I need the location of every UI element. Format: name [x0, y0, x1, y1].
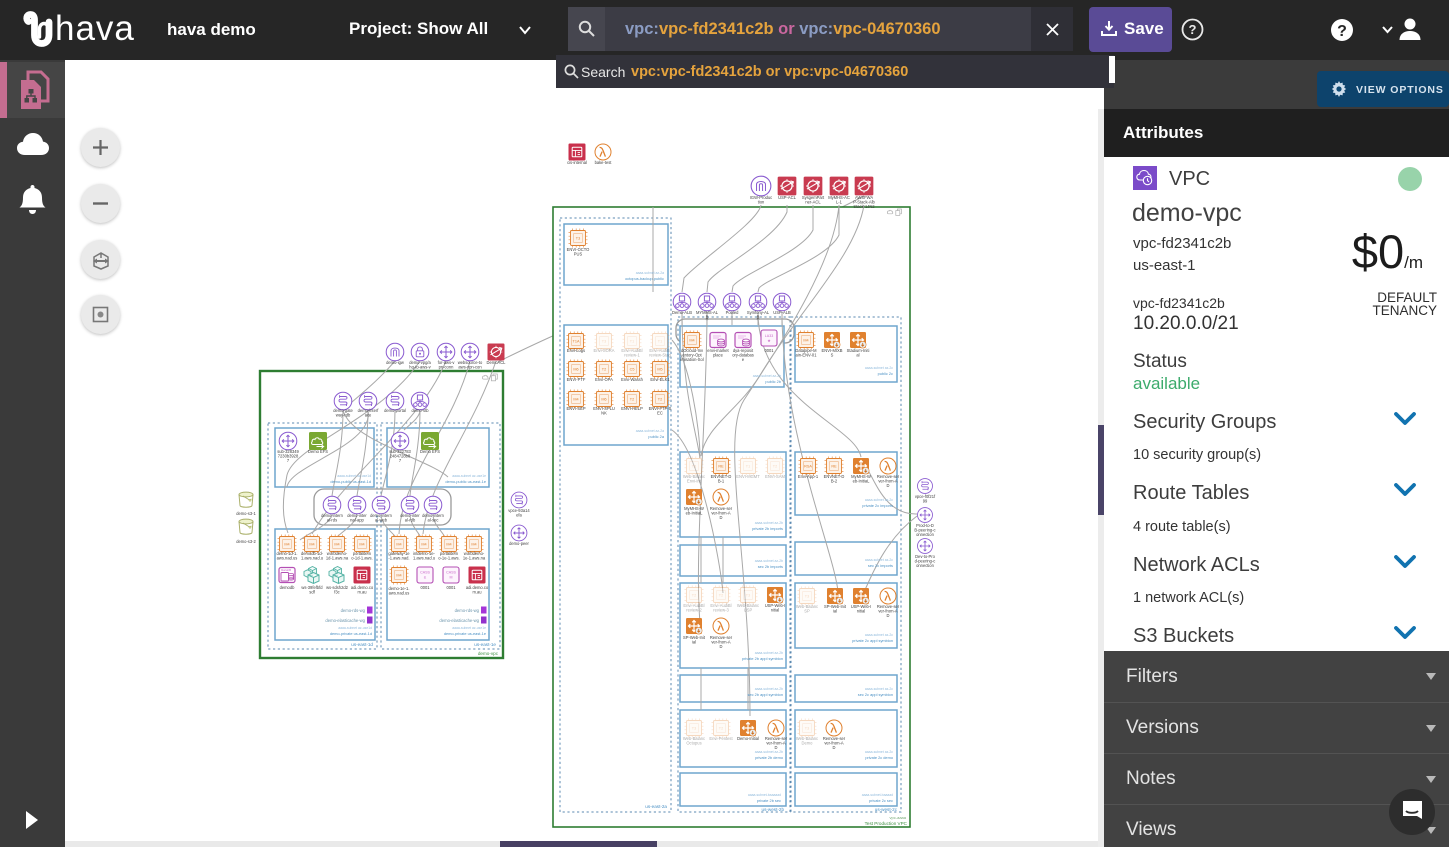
svg-text:aaaa-subnet az-use1d: aaaa-subnet az-use1d: [337, 474, 371, 478]
svg-text:us-west-2c: us-west-2c: [875, 807, 898, 812]
svg-text:public 2a: public 2a: [648, 434, 664, 439]
svg-text:portaldemo-1e-1.aws.: portaldemo-1e-1.aws.: [438, 551, 459, 561]
svg-text:demo-public us-east-1d: demo-public us-east-1d: [330, 479, 371, 484]
svg-text:T2: T2: [692, 594, 696, 598]
svg-text:public 2b: public 2b: [765, 379, 781, 384]
svg-text:M4: M4: [309, 543, 314, 547]
svg-text:T3: T3: [805, 727, 809, 731]
svg-text:aaaa-subnet az-2c: aaaa-subnet az-2c: [865, 687, 893, 691]
svg-text:aaaa-subnet az-2c: aaaa-subnet az-2c: [865, 366, 893, 370]
svg-text:Envi-OPA: Envi-OPA: [595, 377, 613, 382]
svg-text:T2: T2: [773, 465, 777, 469]
svg-text:ENVI-HELP: ENVI-HELP: [621, 406, 643, 411]
svg-text:0001: 0001: [446, 585, 456, 590]
svg-text:T2: T2: [719, 727, 723, 731]
svg-text:T3: T3: [746, 594, 750, 598]
svg-text:vpc-aaaa: vpc-aaaa: [890, 815, 907, 820]
svg-text:aaaa-subnet az-2b: aaaa-subnet az-2b: [755, 651, 783, 655]
svg-text:websource-toaws-vpn-con: websource-toaws-vpn-con: [458, 360, 483, 370]
svg-text:aaaa-subnet az-2c: aaaa-subnet az-2c: [865, 558, 893, 562]
svg-text:?: ?: [1337, 23, 1347, 40]
svg-text:Envi-Logs: Envi-Logs: [567, 348, 585, 353]
svg-text:T3: T3: [692, 727, 696, 731]
svg-text:aaaa-subnet az-2b: aaaa-subnet az-2b: [755, 521, 783, 525]
svg-text:demodb: demodb: [280, 585, 296, 590]
svg-text:RE: RE: [718, 465, 724, 469]
svg-text:us-east-2a: us-east-2a: [645, 804, 667, 809]
svg-text:ENVI-SAM: ENVI-SAM: [765, 474, 785, 479]
svg-text:CASS: CASS: [420, 571, 430, 575]
svg-text:aaaa-subnet az-2b: aaaa-subnet az-2b: [755, 559, 783, 563]
svg-text:M4: M4: [446, 543, 451, 547]
svg-text:worbdemo-1d-1.aws.na: worbdemo-1d-1.aws.na: [326, 551, 349, 561]
svg-text:us-east-1e: us-east-1e: [474, 642, 496, 647]
svg-text:M4: M4: [471, 543, 476, 547]
svg-text:Envi-App-1: Envi-App-1: [798, 474, 819, 479]
svg-text:USP-ALB: USP-ALB: [773, 310, 791, 315]
svg-text:aaaa-subnet-baaaaad: aaaa-subnet-baaaaad: [748, 793, 781, 797]
svg-text:Envi-Wassh: Envi-Wassh: [621, 377, 643, 382]
svg-text:Test Production VPC: Test Production VPC: [865, 821, 908, 826]
svg-text:Demo EFS: Demo EFS: [308, 449, 328, 454]
svg-text:Demo-Initial: Demo-Initial: [737, 736, 759, 741]
svg-text:M: M: [450, 576, 453, 580]
svg-text:aaaa-subnet az-2c: aaaa-subnet az-2c: [865, 498, 893, 502]
svg-text:dOcloud-Inventory-Optimisation: dOcloud-Inventory-Optimisation-Sol: [680, 348, 704, 362]
svg-text:?: ?: [1189, 22, 1197, 37]
svg-text:private 2c imports: private 2c imports: [862, 503, 893, 508]
svg-text:aaaa-subnet az-use1e: aaaa-subnet az-use1e: [452, 474, 486, 478]
svg-text:demodb-1d-1.aws.nad.u: demodb-1d-1.aws.nad.u: [301, 551, 324, 561]
svg-text:aaaa-subnet az-2c: aaaa-subnet az-2c: [865, 633, 893, 637]
svg-text:M4: M4: [689, 339, 694, 343]
svg-text:us-east-1d: us-east-1d: [351, 642, 373, 647]
svg-text:for-aws-vpn-conn: for-aws-vpn-conn: [438, 360, 456, 370]
svg-text:aaaa-subnet az-use1d: aaaa-subnet az-use1d: [338, 626, 372, 630]
svg-text:private 2b appl symbion: private 2b appl symbion: [742, 656, 783, 661]
svg-text:Demo EFS: Demo EFS: [420, 449, 440, 454]
svg-text:demo-private us-east-1e: demo-private us-east-1e: [444, 631, 486, 636]
svg-text:MyMHS-ACL-1: MyMHS-ACL-1: [828, 195, 850, 205]
svg-text:cis-internal: cis-internal: [567, 160, 587, 165]
svg-text:Envi-ELK1: Envi-ELK1: [650, 377, 670, 382]
svg-text:T1: T1: [630, 340, 634, 344]
svg-text:demo-rds-wg: demo-rds-wg: [341, 608, 366, 613]
svg-text:SysgemPartner-ACL: SysgemPartner-ACL: [802, 195, 825, 205]
svg-text:aaaa-subnet az-2c: aaaa-subnet az-2c: [865, 750, 893, 754]
svg-text:★: ★: [767, 338, 771, 343]
svg-text:vpce-f0f21f99: vpce-f0f21f99: [915, 494, 936, 504]
svg-text:Prod-to-DB-peering-connection: Prod-to-DB-peering-connection: [914, 523, 935, 537]
svg-text:aaaa-subnet az-2a: aaaa-subnet az-2a: [636, 429, 664, 433]
svg-text:demo-elasticache-wg: demo-elasticache-wg: [325, 618, 365, 623]
svg-text:bake-test: bake-test: [595, 160, 613, 165]
svg-text:M6: M6: [573, 368, 578, 372]
svg-text:aaaa-subnet-baaaad: aaaa-subnet-baaaad: [862, 793, 893, 797]
svg-text:demo-igw: demo-igw: [386, 360, 404, 365]
svg-text:T1: T1: [746, 465, 750, 469]
svg-text:AWSFWAP-Stack-AlbStack-1JN2: AWSFWAP-Stack-AlbStack-1JN2: [853, 195, 875, 209]
svg-text:vpce-93a14efa: vpce-93a14efa: [508, 508, 530, 518]
svg-text:demo-elasticache-wg: demo-elasticache-wg: [439, 618, 479, 623]
svg-text:demo-portal: demo-portal: [384, 408, 406, 413]
svg-text:M4: M4: [334, 543, 339, 547]
svg-text:octopus-backup-public: octopus-backup-public: [625, 276, 664, 281]
svg-text:M4: M4: [396, 574, 401, 578]
svg-text:Envi-AudiBlreview-Stag: Envi-AudiBlreview-Stag: [649, 348, 671, 358]
svg-text:M4: M4: [359, 543, 364, 547]
svg-text:demo-public us-east-1e: demo-public us-east-1e: [445, 479, 486, 484]
svg-text:T3: T3: [805, 595, 809, 599]
svg-text:T3: T3: [602, 340, 606, 344]
svg-text:M4: M4: [396, 543, 401, 547]
svg-text:demo-1e-1.aws.nad.us: demo-1e-1.aws.nad.us: [389, 586, 410, 596]
svg-text:private 2b sec: private 2b sec: [757, 798, 781, 803]
svg-text:ENVI-PTF: ENVI-PTF: [567, 377, 586, 382]
svg-text:T3: T3: [692, 465, 696, 469]
svg-text:Envi-AudiBlreview-3: Envi-AudiBlreview-3: [710, 603, 731, 613]
svg-text:Envi-AudiBlreview-1: Envi-AudiBlreview-1: [621, 348, 642, 358]
svg-text:demo-s3-1: demo-s3-1: [236, 511, 256, 516]
svg-text:aaaa-subnet az-2b: aaaa-subnet az-2b: [753, 374, 781, 378]
svg-text:T2: T2: [602, 368, 606, 372]
svg-text:sec 2c appl symbion: sec 2c appl symbion: [858, 692, 893, 697]
svg-text:M4: M4: [573, 398, 578, 402]
svg-text:RSA: RSA: [804, 465, 812, 469]
svg-text:Envi-AudiBlreview-2: Envi-AudiBlreview-2: [683, 603, 704, 613]
svg-text:DemoACL: DemoACL: [487, 360, 507, 365]
svg-text:intdemo-1e-1.aws.nad.u: intdemo-1e-1.aws.nad.u: [413, 551, 436, 561]
svg-text:T2: T2: [658, 398, 662, 402]
svg-text:T1: T1: [658, 340, 662, 344]
svg-text:MyMHS-Web-InitiaL: MyMHS-Web-InitiaL: [851, 474, 871, 484]
svg-text:portaldemo-1d-1.aws.: portaldemo-1d-1.aws.: [351, 551, 372, 561]
svg-text:demo-vpc: demo-vpc: [478, 651, 499, 656]
svg-text:private 2c sec: private 2c sec: [869, 798, 893, 803]
svg-text:0001: 0001: [420, 585, 430, 590]
svg-text:demo-vpg/ahq-to-aws-v: demo-vpg/ahq-to-aws-v: [409, 360, 431, 370]
svg-text:aaaa-subnet az-use1e: aaaa-subnet az-use1e: [452, 626, 486, 630]
svg-text:demo-rds-wg: demo-rds-wg: [455, 608, 480, 613]
svg-text:CASS: CASS: [446, 571, 456, 575]
svg-text:M4: M4: [803, 339, 808, 343]
svg-text:us-west-2b: us-west-2b: [762, 807, 785, 812]
svg-text:T1A: T1A: [573, 340, 580, 344]
svg-text:demo-stb: demo-stb: [411, 408, 429, 413]
svg-text:M4: M4: [284, 543, 289, 547]
svg-text:Datapipe-Main-ENV-01: Datapipe-Main-ENV-01: [795, 348, 817, 358]
svg-text:aaaa-subnet az-2b: aaaa-subnet az-2b: [755, 750, 783, 754]
svg-text:demo-1d-1.aws.nad.us: demo-1d-1.aws.nad.us: [277, 551, 298, 561]
svg-text:T2: T2: [719, 594, 723, 598]
svg-text:IGW-Production: IGW-Production: [750, 195, 772, 205]
svg-text:aaaa-subnet az-2b: aaaa-subnet az-2b: [755, 687, 783, 691]
svg-text:gateway-1e-1.aws.nad.: gateway-1e-1.aws.nad.: [388, 551, 410, 561]
svg-text:0001: 0001: [764, 348, 774, 353]
svg-text:ENVI-MGMT: ENVI-MGMT: [736, 474, 760, 479]
svg-text:Envi-Pentest: Envi-Pentest: [709, 736, 733, 741]
svg-text:private 2c appl symbion: private 2c appl symbion: [852, 638, 893, 643]
svg-text:Dev-to-Prod-peering-connection: Dev-to-Prod-peering-connection: [915, 554, 936, 568]
svg-text:RE: RE: [831, 465, 837, 469]
svg-text:private 2b imports: private 2b imports: [752, 526, 783, 531]
svg-text:Pooled: Pooled: [726, 310, 739, 315]
svg-text:demo-s3-2: demo-s3-2: [236, 539, 256, 544]
svg-text:MyMHS-Web-InitiaL: MyMHS-Web-InitiaL: [684, 506, 704, 516]
svg-text:demo-peer: demo-peer: [509, 541, 529, 546]
svg-text:M4: M4: [421, 543, 426, 547]
svg-text:sec 2c imports: sec 2c imports: [868, 563, 893, 568]
svg-text:Envi-SORA: Envi-SORA: [594, 348, 615, 353]
svg-text:demo-private us-east-1d: demo-private us-east-1d: [330, 631, 372, 636]
svg-text:T3: T3: [576, 237, 580, 241]
svg-text:M5: M5: [657, 368, 662, 372]
svg-text:private 2b demo: private 2b demo: [755, 755, 783, 760]
svg-text:private 2c demo: private 2c demo: [865, 755, 893, 760]
svg-text:Demo-ALB: Demo-ALB: [672, 310, 692, 315]
svg-text:aaaa-subnet az-2a: aaaa-subnet az-2a: [636, 271, 664, 275]
svg-text:C5: C5: [630, 368, 635, 372]
svg-text:sec 2b imports: sec 2b imports: [758, 564, 783, 569]
svg-text:M6: M6: [601, 398, 606, 402]
svg-text:T2: T2: [630, 398, 634, 402]
svg-text:USP-ACL: USP-ACL: [778, 195, 796, 200]
svg-text:ENVI-SEP: ENVI-SEP: [566, 406, 585, 411]
svg-text:public 2c: public 2c: [878, 371, 893, 376]
svg-text:worbdemo-1e-1.aws.na: worbdemo-1e-1.aws.na: [463, 551, 486, 561]
svg-text:sec 2b appl symbion: sec 2b appl symbion: [748, 692, 783, 697]
